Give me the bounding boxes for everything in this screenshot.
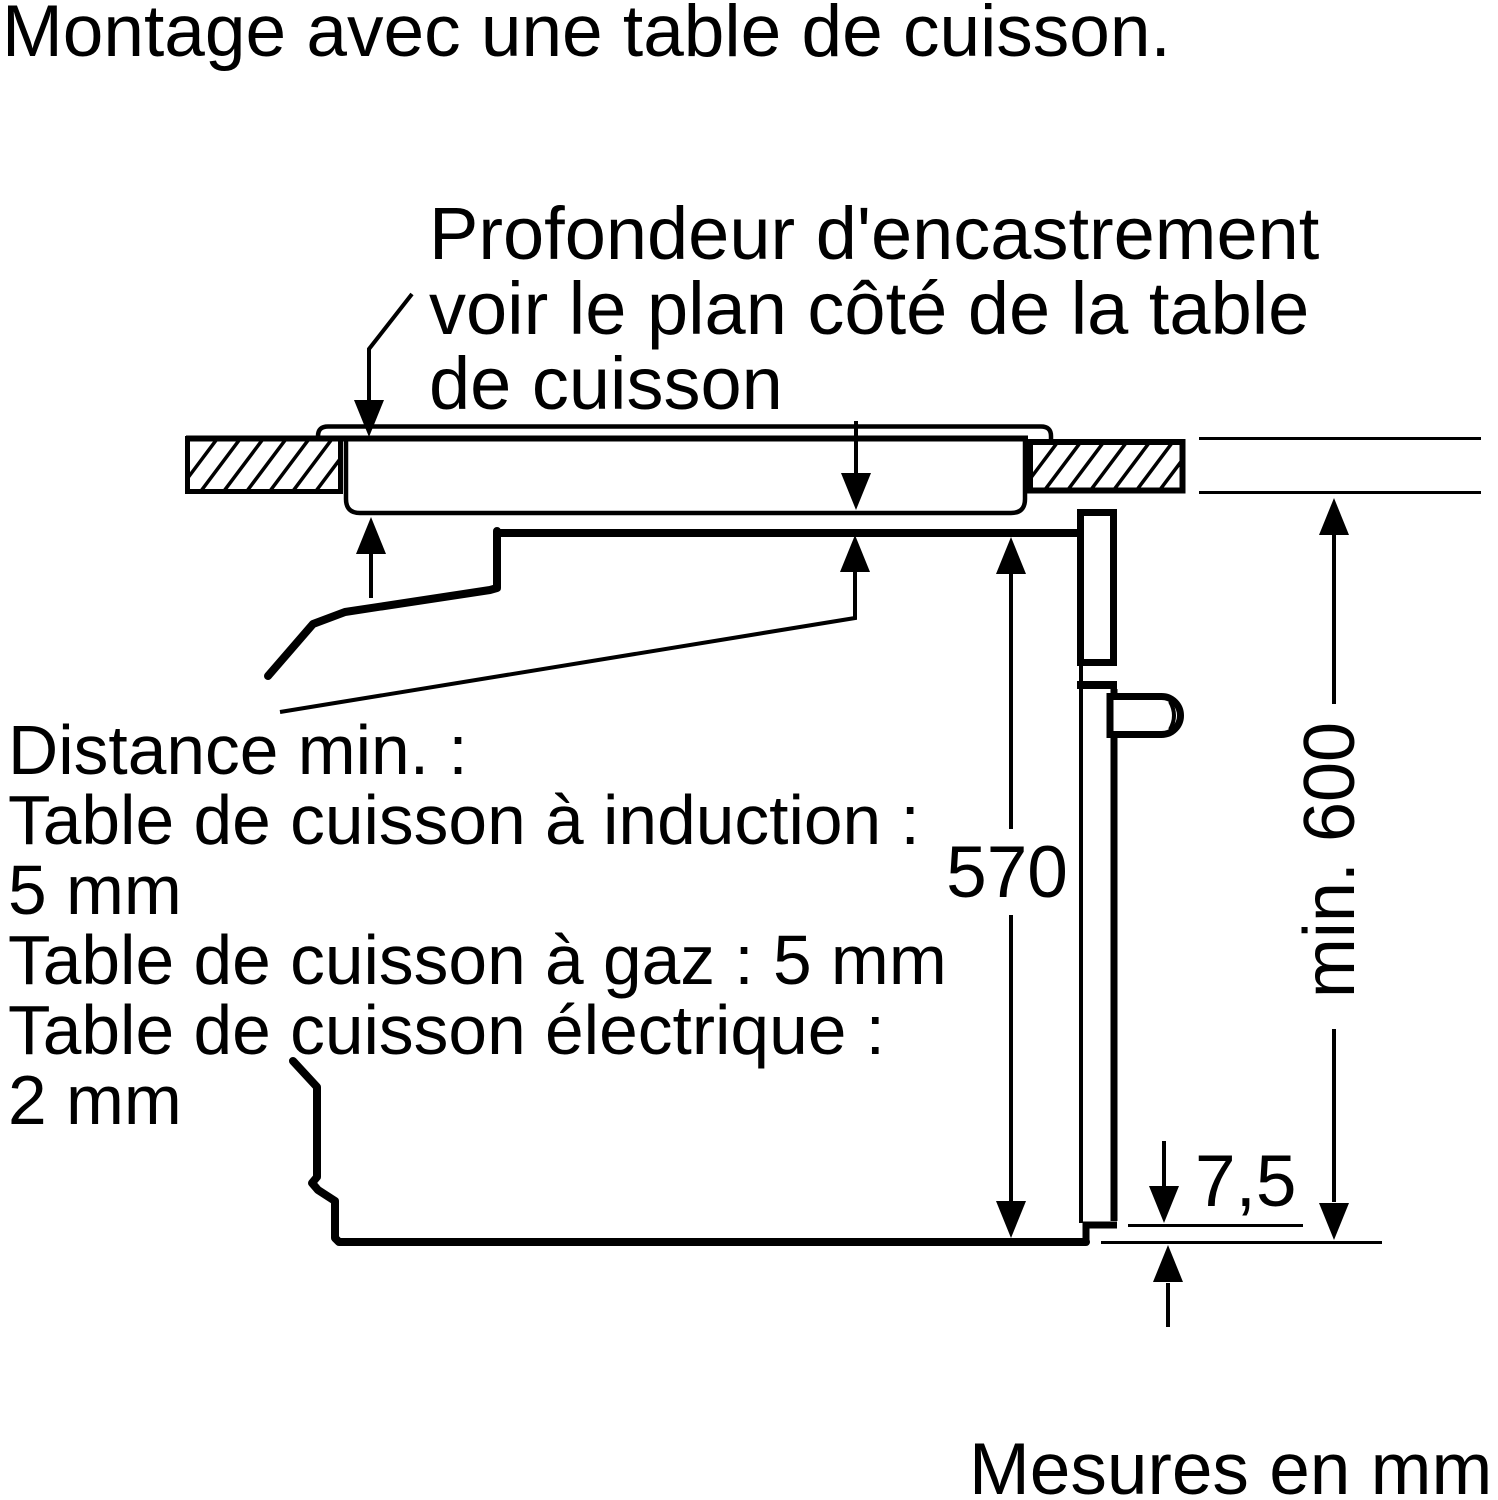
svg-text:voir le plan côté de la table: voir le plan côté de la table bbox=[429, 267, 1309, 350]
svg-text:min. 600: min. 600 bbox=[1290, 722, 1370, 998]
svg-text:Montage avec une table de cuis: Montage avec une table de cuisson. bbox=[2, 0, 1171, 72]
svg-text:Distance min. :: Distance min. : bbox=[8, 711, 468, 789]
svg-text:Mesures en mm: Mesures en mm bbox=[969, 1429, 1492, 1500]
svg-text:2 mm: 2 mm bbox=[8, 1061, 182, 1139]
svg-text:de cuisson: de cuisson bbox=[429, 342, 783, 425]
svg-text:7,5: 7,5 bbox=[1195, 1141, 1296, 1222]
svg-text:Profondeur d'encastrement: Profondeur d'encastrement bbox=[429, 192, 1320, 275]
svg-text:Table de cuisson à induction :: Table de cuisson à induction : bbox=[8, 781, 920, 859]
svg-text:Table de cuisson à gaz : 5 mm: Table de cuisson à gaz : 5 mm bbox=[8, 921, 947, 999]
svg-text:5 mm: 5 mm bbox=[8, 851, 182, 929]
svg-text:570: 570 bbox=[946, 832, 1068, 913]
svg-text:Table de cuisson électrique :: Table de cuisson électrique : bbox=[8, 991, 885, 1069]
